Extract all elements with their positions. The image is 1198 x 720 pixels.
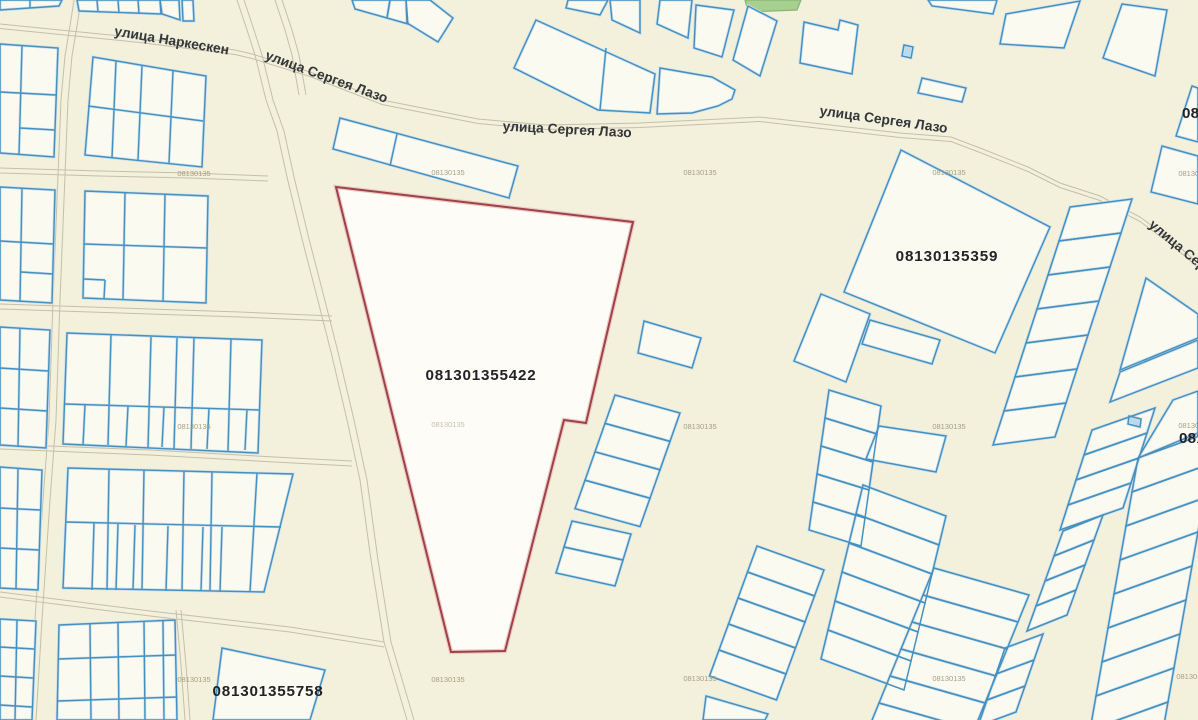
svg-text:08130135359: 08130135359 — [896, 248, 999, 265]
svg-text:08130135: 08130135 — [683, 168, 716, 177]
svg-text:08130135: 08130135 — [431, 168, 464, 177]
svg-text:08130135: 08130135 — [431, 420, 464, 429]
svg-text:081301355422: 081301355422 — [426, 367, 537, 384]
svg-text:08130135: 08130135 — [932, 674, 965, 683]
svg-text:08130135: 08130135 — [177, 169, 210, 178]
svg-text:08130135: 08130135 — [431, 675, 464, 684]
svg-text:08130135: 08130135 — [932, 422, 965, 431]
svg-text:0813: 0813 — [1182, 105, 1198, 122]
svg-text:08130135: 08130135 — [177, 422, 210, 431]
svg-text:08130135: 08130135 — [683, 422, 716, 431]
svg-text:08130135: 08130135 — [683, 674, 716, 683]
svg-text:08130135: 08130135 — [932, 168, 965, 177]
svg-text:08130135: 08130135 — [1178, 421, 1198, 430]
svg-text:08130135: 08130135 — [1178, 169, 1198, 178]
svg-text:08130135: 08130135 — [177, 675, 210, 684]
svg-text:08130135: 08130135 — [1176, 672, 1198, 681]
svg-text:081301355758: 081301355758 — [213, 683, 324, 700]
svg-text:0813: 0813 — [1179, 430, 1198, 447]
